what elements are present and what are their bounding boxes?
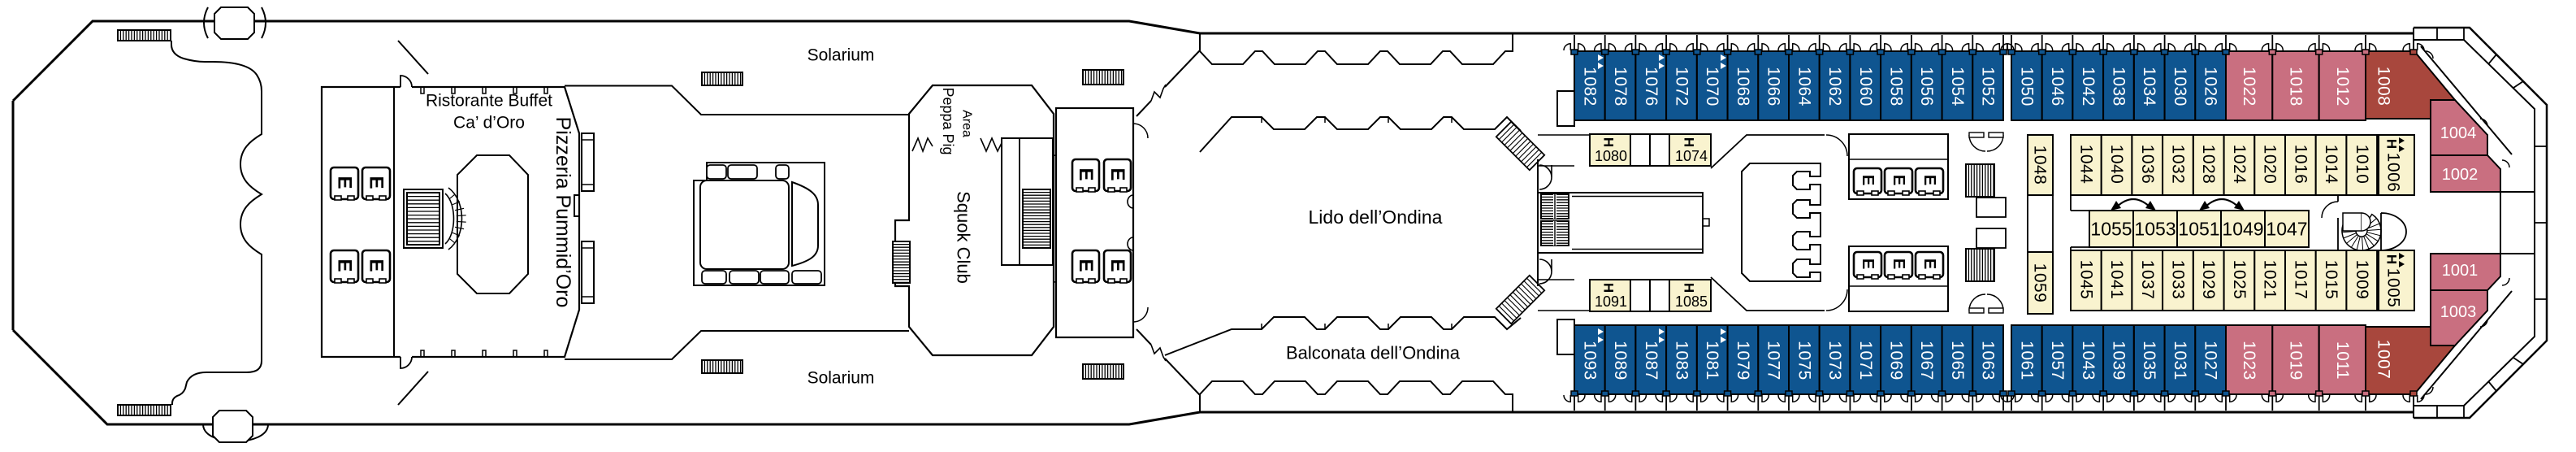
svg-text:1067: 1067 — [1917, 341, 1936, 380]
svg-text:1074: 1074 — [1675, 148, 1708, 164]
svg-text:1054: 1054 — [1948, 67, 1967, 106]
svg-text:1022: 1022 — [2240, 67, 2258, 106]
svg-text:1002: 1002 — [2442, 166, 2479, 184]
svg-text:1033: 1033 — [2169, 260, 2188, 300]
svg-text:1023: 1023 — [2240, 341, 2258, 380]
svg-text:1030: 1030 — [2171, 67, 2189, 106]
svg-text:1028: 1028 — [2199, 145, 2218, 185]
svg-text:Solarium: Solarium — [807, 46, 875, 65]
svg-text:1066: 1066 — [1764, 67, 1783, 106]
svg-text:1021: 1021 — [2261, 260, 2279, 300]
svg-text:Squok Club: Squok Club — [954, 191, 974, 284]
svg-text:Peppa Pig: Peppa Pig — [940, 87, 956, 154]
svg-text:1011: 1011 — [2333, 341, 2352, 380]
svg-text:E: E — [1075, 259, 1097, 272]
svg-text:1070: 1070 — [1703, 67, 1721, 106]
svg-text:1003: 1003 — [2440, 303, 2477, 321]
svg-text:E: E — [1920, 259, 1938, 269]
svg-text:1072: 1072 — [1673, 67, 1691, 106]
svg-text:E: E — [1106, 167, 1128, 180]
svg-text:1053: 1053 — [2134, 219, 2176, 240]
svg-text:1032: 1032 — [2169, 145, 2188, 185]
svg-text:Lido dell’Ondina: Lido dell’Ondina — [1309, 206, 1443, 228]
svg-text:1039: 1039 — [2110, 341, 2128, 380]
svg-text:H: H — [1682, 137, 1697, 147]
svg-text:1063: 1063 — [1979, 341, 1998, 380]
svg-text:1016: 1016 — [2291, 145, 2310, 185]
svg-text:1085: 1085 — [1675, 293, 1708, 310]
svg-text:1075: 1075 — [1795, 341, 1813, 380]
svg-text:1076: 1076 — [1642, 67, 1660, 106]
svg-text:1091: 1091 — [1595, 293, 1627, 310]
svg-text:1062: 1062 — [1825, 67, 1844, 106]
svg-text:1007: 1007 — [2375, 340, 2393, 380]
svg-text:E: E — [334, 176, 356, 189]
svg-text:1029: 1029 — [2199, 260, 2218, 300]
svg-text:1064: 1064 — [1795, 67, 1813, 106]
svg-text:H: H — [2384, 139, 2400, 149]
svg-text:1065: 1065 — [1948, 341, 1967, 380]
svg-text:1044: 1044 — [2076, 145, 2095, 185]
svg-text:Ca’ d’Oro: Ca’ d’Oro — [453, 114, 525, 133]
svg-text:E: E — [1106, 259, 1128, 272]
svg-text:1009: 1009 — [2353, 260, 2371, 300]
svg-text:1008: 1008 — [2375, 67, 2393, 106]
svg-text:1045: 1045 — [2076, 260, 2095, 300]
svg-text:1068: 1068 — [1734, 67, 1752, 106]
svg-text:1069: 1069 — [1887, 341, 1906, 380]
svg-text:1036: 1036 — [2138, 145, 2157, 185]
svg-text:1046: 1046 — [2048, 67, 2067, 106]
svg-text:1078: 1078 — [1611, 67, 1630, 106]
svg-text:1087: 1087 — [1642, 341, 1660, 380]
svg-text:Solarium: Solarium — [807, 369, 875, 388]
svg-text:E: E — [334, 259, 356, 272]
svg-text:1071: 1071 — [1856, 341, 1875, 380]
svg-text:1005: 1005 — [2384, 268, 2403, 308]
svg-text:1035: 1035 — [2140, 341, 2158, 380]
svg-text:H: H — [1682, 283, 1697, 293]
svg-text:1012: 1012 — [2333, 67, 2352, 106]
svg-text:E: E — [1890, 259, 1907, 269]
svg-text:1055: 1055 — [2090, 219, 2132, 240]
svg-text:1060: 1060 — [1856, 67, 1875, 106]
svg-text:1089: 1089 — [1611, 341, 1630, 380]
svg-text:H: H — [1601, 137, 1617, 147]
svg-text:1081: 1081 — [1703, 341, 1721, 380]
svg-text:1001: 1001 — [2442, 262, 2479, 280]
svg-text:E: E — [1075, 167, 1097, 180]
svg-text:1018: 1018 — [2287, 67, 2305, 106]
svg-text:1040: 1040 — [2107, 145, 2126, 185]
svg-text:1043: 1043 — [2079, 341, 2098, 380]
svg-text:1056: 1056 — [1917, 67, 1936, 106]
svg-text:1042: 1042 — [2079, 67, 2098, 106]
svg-text:1006: 1006 — [2384, 153, 2403, 193]
svg-text:1083: 1083 — [1673, 341, 1691, 380]
svg-text:Ristorante Buffet: Ristorante Buffet — [426, 92, 552, 111]
svg-text:E: E — [366, 176, 387, 189]
svg-text:1019: 1019 — [2287, 341, 2305, 380]
svg-text:1073: 1073 — [1825, 341, 1844, 380]
svg-text:1077: 1077 — [1764, 341, 1783, 380]
svg-text:1024: 1024 — [2230, 145, 2249, 185]
svg-text:1059: 1059 — [2031, 263, 2050, 303]
svg-text:1031: 1031 — [2171, 341, 2189, 380]
svg-text:1052: 1052 — [1979, 67, 1998, 106]
svg-text:1082: 1082 — [1580, 67, 1599, 106]
svg-text:1061: 1061 — [2017, 341, 2036, 380]
svg-text:1050: 1050 — [2017, 67, 2036, 106]
svg-text:1079: 1079 — [1734, 341, 1752, 380]
svg-text:1080: 1080 — [1595, 148, 1627, 164]
svg-text:1047: 1047 — [2266, 219, 2307, 240]
svg-text:1048: 1048 — [2031, 146, 2050, 185]
svg-text:Pizzeria Pummid’Oro: Pizzeria Pummid’Oro — [552, 117, 574, 308]
svg-text:H: H — [2384, 254, 2400, 264]
svg-text:1020: 1020 — [2261, 145, 2279, 185]
svg-text:1026: 1026 — [2202, 67, 2220, 106]
svg-text:1049: 1049 — [2222, 219, 2263, 240]
svg-text:1014: 1014 — [2322, 145, 2340, 185]
svg-text:1058: 1058 — [1887, 67, 1906, 106]
svg-text:1057: 1057 — [2048, 341, 2067, 380]
svg-text:H: H — [1601, 283, 1617, 293]
svg-text:1027: 1027 — [2202, 341, 2220, 380]
svg-text:E: E — [1920, 175, 1938, 185]
svg-text:1010: 1010 — [2353, 145, 2371, 185]
svg-text:1025: 1025 — [2230, 260, 2249, 300]
svg-text:1051: 1051 — [2178, 219, 2219, 240]
svg-text:E: E — [1890, 175, 1907, 185]
svg-text:1093: 1093 — [1580, 341, 1599, 380]
svg-text:1041: 1041 — [2107, 260, 2126, 300]
svg-text:1038: 1038 — [2110, 67, 2128, 106]
svg-text:E: E — [1859, 259, 1877, 269]
svg-text:E: E — [366, 259, 387, 272]
svg-text:E: E — [1859, 175, 1877, 185]
svg-text:1015: 1015 — [2322, 260, 2340, 300]
svg-text:Balconata dell’Ondina: Balconata dell’Ondina — [1286, 343, 1461, 363]
svg-text:1017: 1017 — [2291, 260, 2310, 300]
svg-text:1034: 1034 — [2140, 67, 2158, 106]
svg-text:1037: 1037 — [2138, 260, 2157, 300]
svg-text:Area: Area — [960, 110, 974, 137]
svg-text:1004: 1004 — [2440, 124, 2477, 142]
